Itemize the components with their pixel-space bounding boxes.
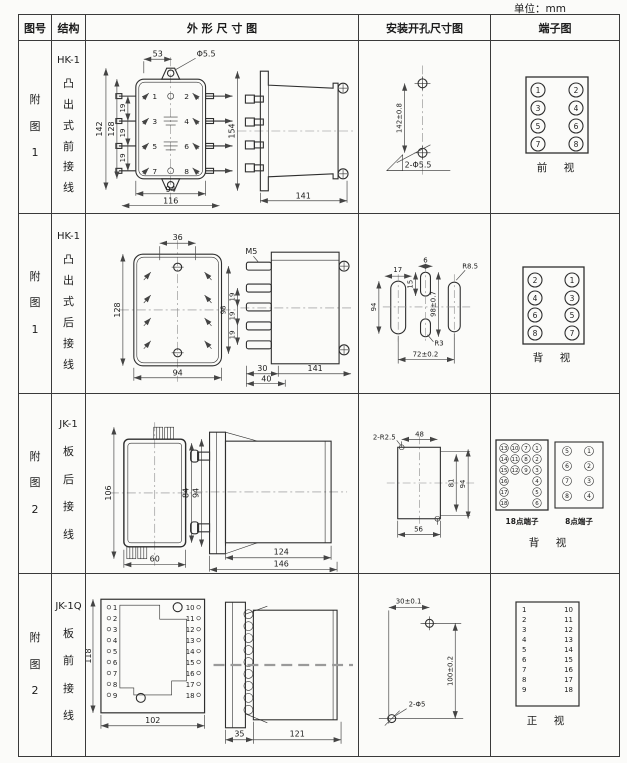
dim-84: 84: [182, 487, 191, 497]
terminal-no: 15: [186, 659, 195, 667]
terminal-no: 10: [512, 446, 519, 452]
terminal-no: 14: [501, 457, 508, 463]
side-view-shapes: [214, 602, 353, 728]
header-fig-label: 图号: [24, 20, 46, 36]
terminal-no: 5: [565, 448, 569, 455]
dim-56: 56: [414, 525, 423, 533]
dim-94: 94: [173, 368, 183, 377]
side-studs: [246, 262, 271, 349]
terminal-no: 1: [536, 86, 541, 95]
terminal-no: 3: [587, 478, 591, 485]
row2-terminal-cell: 2 1 4 3 6 5 8 7 背 视: [491, 214, 619, 394]
row2-mount-cell: 17 6 15 94 98±0.7 R8.5 R3 72±0.2: [359, 214, 491, 394]
terminal-no: 6: [522, 656, 527, 664]
dim-19: 19: [228, 292, 236, 301]
structure-text: 板前接线: [62, 620, 76, 730]
dim-128: 128: [113, 302, 122, 317]
terminal-no: 7: [565, 478, 569, 485]
structure-text: 凸出式前接线: [62, 74, 76, 199]
terminal-no: 16: [186, 670, 195, 678]
terminal-no: 7: [152, 166, 157, 175]
dim-124: 124: [274, 547, 289, 556]
terminal-no: 2: [533, 276, 538, 285]
model-label: HK-1: [57, 231, 80, 242]
terminal-no: 8: [565, 493, 569, 500]
dim-19: 19: [228, 330, 236, 339]
jk1q-terminal-diagram: 1 2 3 4 5 6 7 8 9 10 11 12 13 14 15 16 1…: [491, 574, 619, 756]
header-mount-col: 安装开孔尺寸图: [359, 15, 491, 41]
terminal-no: 12: [186, 626, 195, 634]
front-view-shapes: 1 2 3 4 5 6 7 8 9 10 11 12 13 14 15 16 1: [101, 599, 205, 713]
hk1-rear-terminal-diagram: 2 1 4 3 6 5 8 7 背 视: [491, 214, 619, 394]
row3-outline-cell: 106 84 94 60: [86, 394, 359, 574]
terminal-no: 16: [564, 666, 573, 674]
fig-no-text: 附图2: [28, 625, 42, 704]
row3-mount-cell: 2-R2.5 48 81 94 56: [359, 394, 491, 574]
dim-146: 146: [274, 559, 289, 568]
dim-36: 36: [173, 233, 183, 242]
side-view-shapes: [237, 71, 353, 191]
terminal-no: 5: [113, 648, 117, 656]
spec-table: 图号 结构 外 形 尺 寸 图 安装开孔尺寸图 端子图 附图1 HK-1 凸出式…: [18, 14, 620, 757]
terminal-stubs: [116, 93, 233, 173]
jk1q-mount-drawing: 30±0.1 100±0.2 2-Φ5: [359, 574, 490, 756]
side-view-dims: 35 121: [225, 722, 341, 744]
row1-terminal-cell: 1 2 3 4 5 6 7 8 前 视: [491, 41, 619, 214]
front-view-dims: 53 Φ5.5 142 128 19 19 19 94: [95, 49, 220, 205]
terminal-no: 17: [186, 681, 195, 689]
dim-35: 35: [234, 730, 244, 739]
view-label: 背 视: [533, 351, 574, 364]
terminal-no: 15: [564, 656, 573, 664]
dim-154: 154: [227, 123, 236, 138]
dim-r85: R8.5: [462, 262, 478, 270]
header-struct-label: 结构: [58, 20, 80, 36]
dim-19: 19: [119, 103, 127, 112]
dim-72-tol: 72±0.2: [413, 350, 439, 358]
terminal-no: 18: [186, 692, 195, 700]
dim-6: 6: [423, 256, 427, 264]
hk1-front-outline-drawing: 1 2 3 4 5 6 7 8 53 Φ5.5 142: [86, 41, 358, 214]
terminal-no: 3: [152, 117, 157, 126]
fig-no-text: 附图2: [28, 444, 42, 523]
dim-hole: Φ5.5: [197, 49, 216, 58]
mount-dims: 2-R2.5 48 81 94 56: [373, 430, 468, 537]
row3-structure: JK-1 板后接线: [52, 394, 86, 574]
dim-94: 94: [166, 184, 176, 193]
dim-19: 19: [119, 128, 127, 137]
front-view-shapes: 1 2 3 4 5 6 7 8: [116, 57, 233, 200]
terminal-no: 4: [533, 294, 538, 303]
terminal-no: 9: [524, 468, 528, 474]
dim-30: 30: [257, 363, 267, 372]
dim-m5: M5: [245, 247, 257, 256]
row1-fig-no: 附图1: [19, 41, 52, 214]
fig-no-text: 附图1: [28, 264, 42, 343]
terminal-no: 4: [535, 479, 539, 485]
terminal-no: 2: [574, 86, 579, 95]
terminal-no: 7: [113, 670, 117, 678]
terminal-no: 4: [587, 493, 591, 500]
terminal-no: 10: [564, 606, 573, 614]
terminal-no: 1: [522, 606, 526, 614]
dim-98-tol: 98±0.7: [429, 291, 437, 317]
terminal-no: 6: [565, 463, 569, 470]
terminal-no: 3: [535, 468, 539, 474]
terminal-no: 18: [501, 501, 508, 507]
terminal-no: 10: [186, 604, 195, 612]
terminal-no: 5: [535, 490, 539, 496]
dim-142: 142: [95, 121, 104, 136]
terminal-no: 8: [184, 166, 189, 175]
terminal-no: 2: [184, 92, 189, 101]
header-fig-col: 图号: [19, 15, 52, 41]
dim-106: 106: [104, 485, 113, 500]
row1-outline-cell: 1 2 3 4 5 6 7 8 53 Φ5.5 142: [86, 41, 359, 214]
header-terminal-label: 端子图: [539, 20, 572, 36]
terminal-no: 1: [113, 604, 117, 612]
header-terminal-col: 端子图: [491, 15, 619, 41]
view-label: 前 视: [537, 161, 578, 174]
row3-fig-no: 附图2: [19, 394, 52, 574]
terminal-no: 4: [113, 637, 118, 645]
view-label: 背 视: [529, 536, 570, 549]
terminal-no: 5: [536, 122, 541, 131]
terminal-no: 14: [564, 646, 573, 654]
terminal-no: 3: [536, 104, 541, 113]
dim-2r25: 2-R2.5: [373, 433, 396, 441]
dim-116: 116: [163, 196, 178, 205]
dim-40: 40: [261, 374, 271, 383]
jk1-outline-drawing: 106 84 94 60: [86, 394, 358, 574]
mount-dims: 30±0.1 100±0.2 2-Φ5: [389, 597, 455, 718]
dim-30-tol: 30±0.1: [396, 597, 422, 605]
terminal-no: 8: [113, 681, 117, 689]
dim-17: 17: [393, 266, 402, 274]
screw-cluster-top: [154, 427, 174, 439]
terminal-no: 12: [512, 468, 519, 474]
terminal-no: 6: [184, 141, 189, 150]
hk1-rear-mount-drawing: 17 6 15 94 98±0.7 R8.5 R3 72±0.2: [359, 214, 490, 394]
terminal-no: 14: [186, 648, 195, 656]
structure-text: 凸出式后接线: [62, 250, 76, 375]
fig-no-text: 附图1: [28, 87, 42, 166]
terminal-no: 6: [533, 311, 538, 320]
dim-98: 98: [219, 305, 227, 314]
dim-94: 94: [192, 487, 201, 497]
terminal18-label: 18点端子: [506, 516, 539, 526]
dim-141: 141: [296, 191, 311, 200]
jk1q-outline-drawing: 1 2 3 4 5 6 7 8 9 10 11 12 13 14 15 16 1: [86, 574, 358, 756]
dim-142-tol: 142±0.8: [396, 103, 404, 133]
header-mount-label: 安装开孔尺寸图: [386, 20, 463, 36]
terminal8-label: 8点端子: [565, 516, 593, 526]
terminal-no: 4: [184, 117, 189, 126]
structure-text: 板后接线: [62, 438, 76, 548]
terminal-no: 2: [522, 616, 526, 624]
row2-structure: HK-1 凸出式后接线: [52, 214, 86, 394]
terminal-no: 12: [564, 626, 573, 634]
terminal-no: 6: [113, 659, 117, 667]
side-view-shapes: [240, 252, 353, 364]
front-view-shapes: [120, 240, 236, 381]
jk1-terminal-diagram: 13 10 7 1 14 11 8 2 15 12 9 3 16 4 17 5 …: [491, 394, 619, 574]
row1-structure: HK-1 凸出式前接线: [52, 41, 86, 214]
dim-118: 118: [86, 648, 93, 663]
dim-94: 94: [370, 301, 378, 310]
terminal-no: 9: [113, 692, 117, 700]
terminal-no: 15: [501, 468, 508, 474]
terminal-no: 7: [522, 666, 526, 674]
terminal-no: 6: [535, 501, 539, 507]
terminal-no: 7: [536, 140, 541, 149]
row4-fig-no: 附图2: [19, 574, 52, 756]
terminal-no: 17: [501, 490, 508, 496]
terminal-no: 6: [574, 122, 579, 131]
view-label: 正 视: [527, 714, 568, 727]
header-outline-col: 外 形 尺 寸 图: [86, 15, 359, 41]
row4-mount-cell: 30±0.1 100±0.2 2-Φ5: [359, 574, 491, 756]
dim-81: 81: [447, 478, 455, 487]
terminal-no: 7: [524, 446, 528, 452]
terminal-no: 11: [512, 457, 519, 463]
terminal-no: 8: [522, 676, 526, 684]
terminal-no: 4: [574, 104, 579, 113]
side-view-dims: 124 146: [210, 545, 338, 571]
terminal-no: 3: [113, 626, 117, 634]
side-view-dims: 154 141: [227, 71, 347, 203]
terminal-no: 18: [564, 686, 573, 694]
row2-outline-cell: 36 128 94: [86, 214, 359, 394]
terminal-no: 2: [587, 463, 591, 470]
terminal-no: 8: [533, 329, 538, 338]
terminal-no: 13: [186, 637, 195, 645]
terminal-no: 11: [186, 615, 195, 623]
dim-19: 19: [228, 311, 236, 320]
dim-2holes: 2-Φ5.5: [405, 160, 432, 169]
terminal-no: 4: [522, 636, 527, 644]
terminal-no: 2: [113, 615, 117, 623]
dim-48: 48: [415, 430, 424, 438]
terminal-no: 7: [570, 329, 575, 338]
terminal-no: 1: [535, 446, 539, 452]
terminal-no: 1: [152, 92, 157, 101]
hk1-front-mount-drawing: 142±0.8 2-Φ5.5: [359, 41, 490, 214]
row3-terminal-cell: 13 10 7 1 14 11 8 2 15 12 9 3 16 4 17 5 …: [491, 394, 619, 574]
dim-53: 53: [153, 49, 163, 58]
hk1-front-terminal-diagram: 1 2 3 4 5 6 7 8 前 视: [491, 41, 619, 214]
dim-94: 94: [459, 479, 467, 488]
terminal-no: 5: [570, 311, 575, 320]
row4-terminal-cell: 1 2 3 4 5 6 7 8 9 10 11 12 13 14 15 16 1…: [491, 574, 619, 756]
model-label: JK-1Q: [55, 601, 81, 612]
hk1-rear-outline-drawing: 36 128 94: [86, 214, 358, 394]
dim-100-tol: 100±0.2: [446, 656, 454, 686]
row2-fig-no: 附图1: [19, 214, 52, 394]
dim-15: 15: [407, 279, 415, 288]
dim-102: 102: [145, 716, 160, 725]
terminal-no: 11: [564, 616, 573, 624]
dim-141: 141: [308, 363, 323, 372]
terminal-no: 1: [587, 448, 591, 455]
jk1-mount-drawing: 2-R2.5 48 81 94 56: [359, 394, 490, 574]
terminal-no: 8: [524, 457, 528, 463]
model-label: JK-1: [59, 419, 77, 430]
row4-structure: JK-1Q 板前接线: [52, 574, 86, 756]
side-view-dims: M5 19 19 19 98 30 40 141: [219, 247, 351, 387]
model-label: HK-1: [57, 55, 80, 66]
terminal-no: 8: [574, 140, 579, 149]
terminal-no: 16: [501, 479, 508, 485]
terminal-no: 3: [522, 626, 526, 634]
terminal-no: 1: [570, 276, 575, 285]
terminal-no: 5: [152, 141, 157, 150]
terminal18-circles: [500, 443, 542, 507]
terminal-no: 2: [535, 457, 539, 463]
row4-outline-cell: 1 2 3 4 5 6 7 8 9 10 11 12 13 14 15 16 1: [86, 574, 359, 756]
dim-19: 19: [119, 153, 127, 162]
relay-spec-sheet: 单位：mm 图号 结构 外 形 尺 寸 图 安装开孔尺寸图 端子图 附图1 HK…: [0, 0, 627, 763]
dim-60: 60: [150, 554, 160, 563]
terminal-no: 9: [522, 686, 526, 694]
side-view-shapes: [191, 432, 347, 554]
terminal-no: 13: [564, 636, 573, 644]
screw-cluster-bottom: [127, 546, 147, 558]
dim-128: 128: [107, 121, 116, 136]
dim-r3: R3: [434, 339, 443, 347]
dim-2phi5: 2-Φ5: [409, 701, 426, 709]
terminal-no: 13: [501, 446, 508, 452]
terminal-no: 5: [522, 646, 526, 654]
terminal-no: 3: [570, 294, 575, 303]
front-view-dims: 36 128 94: [113, 233, 222, 380]
header-struct-col: 结构: [52, 15, 86, 41]
row1-mount-cell: 142±0.8 2-Φ5.5: [359, 41, 491, 214]
dim-121: 121: [290, 730, 305, 739]
header-outline-label: 外 形 尺 寸 图: [187, 20, 257, 36]
terminal-no: 17: [564, 676, 573, 684]
